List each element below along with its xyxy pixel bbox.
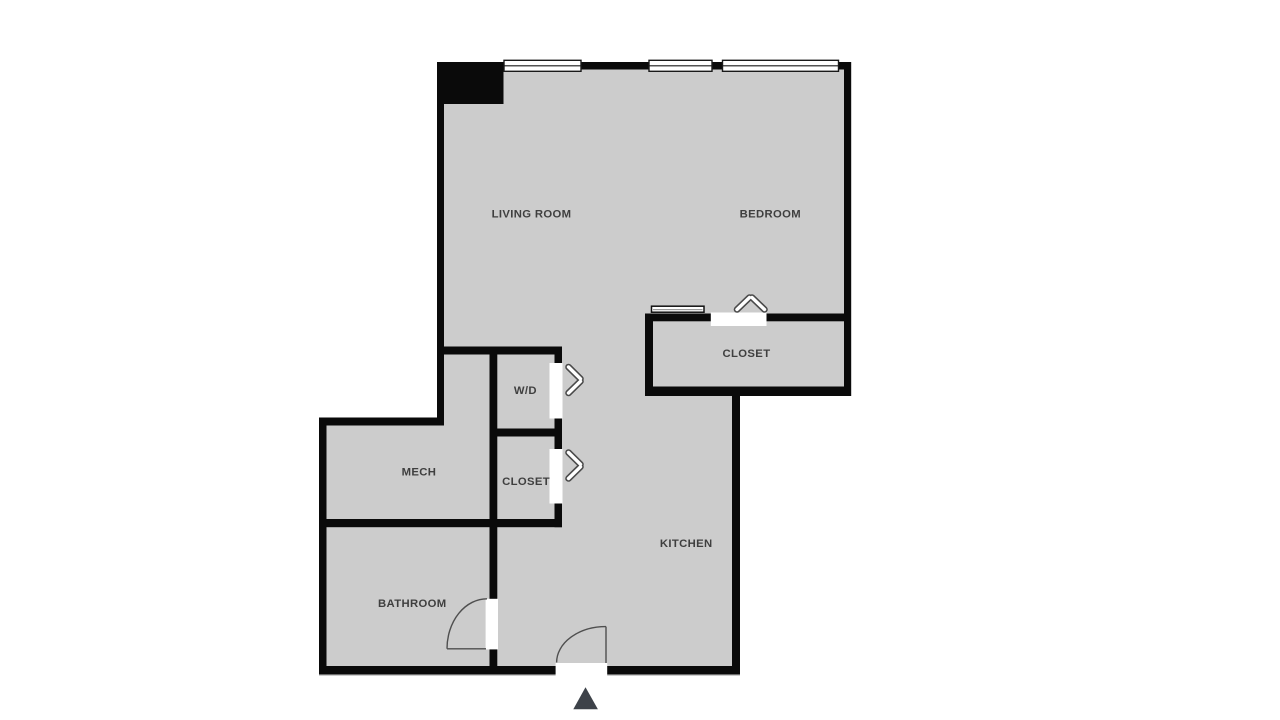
svg-text:W/D: W/D [514, 385, 537, 397]
svg-text:CLOSET: CLOSET [723, 348, 771, 360]
svg-text:CLOSET: CLOSET [502, 476, 550, 488]
svg-text:KITCHEN: KITCHEN [660, 538, 713, 550]
svg-text:BEDROOM: BEDROOM [740, 209, 801, 221]
svg-text:MECH: MECH [402, 467, 437, 479]
svg-text:BATHROOM: BATHROOM [378, 598, 446, 610]
svg-text:LIVING ROOM: LIVING ROOM [492, 209, 572, 221]
